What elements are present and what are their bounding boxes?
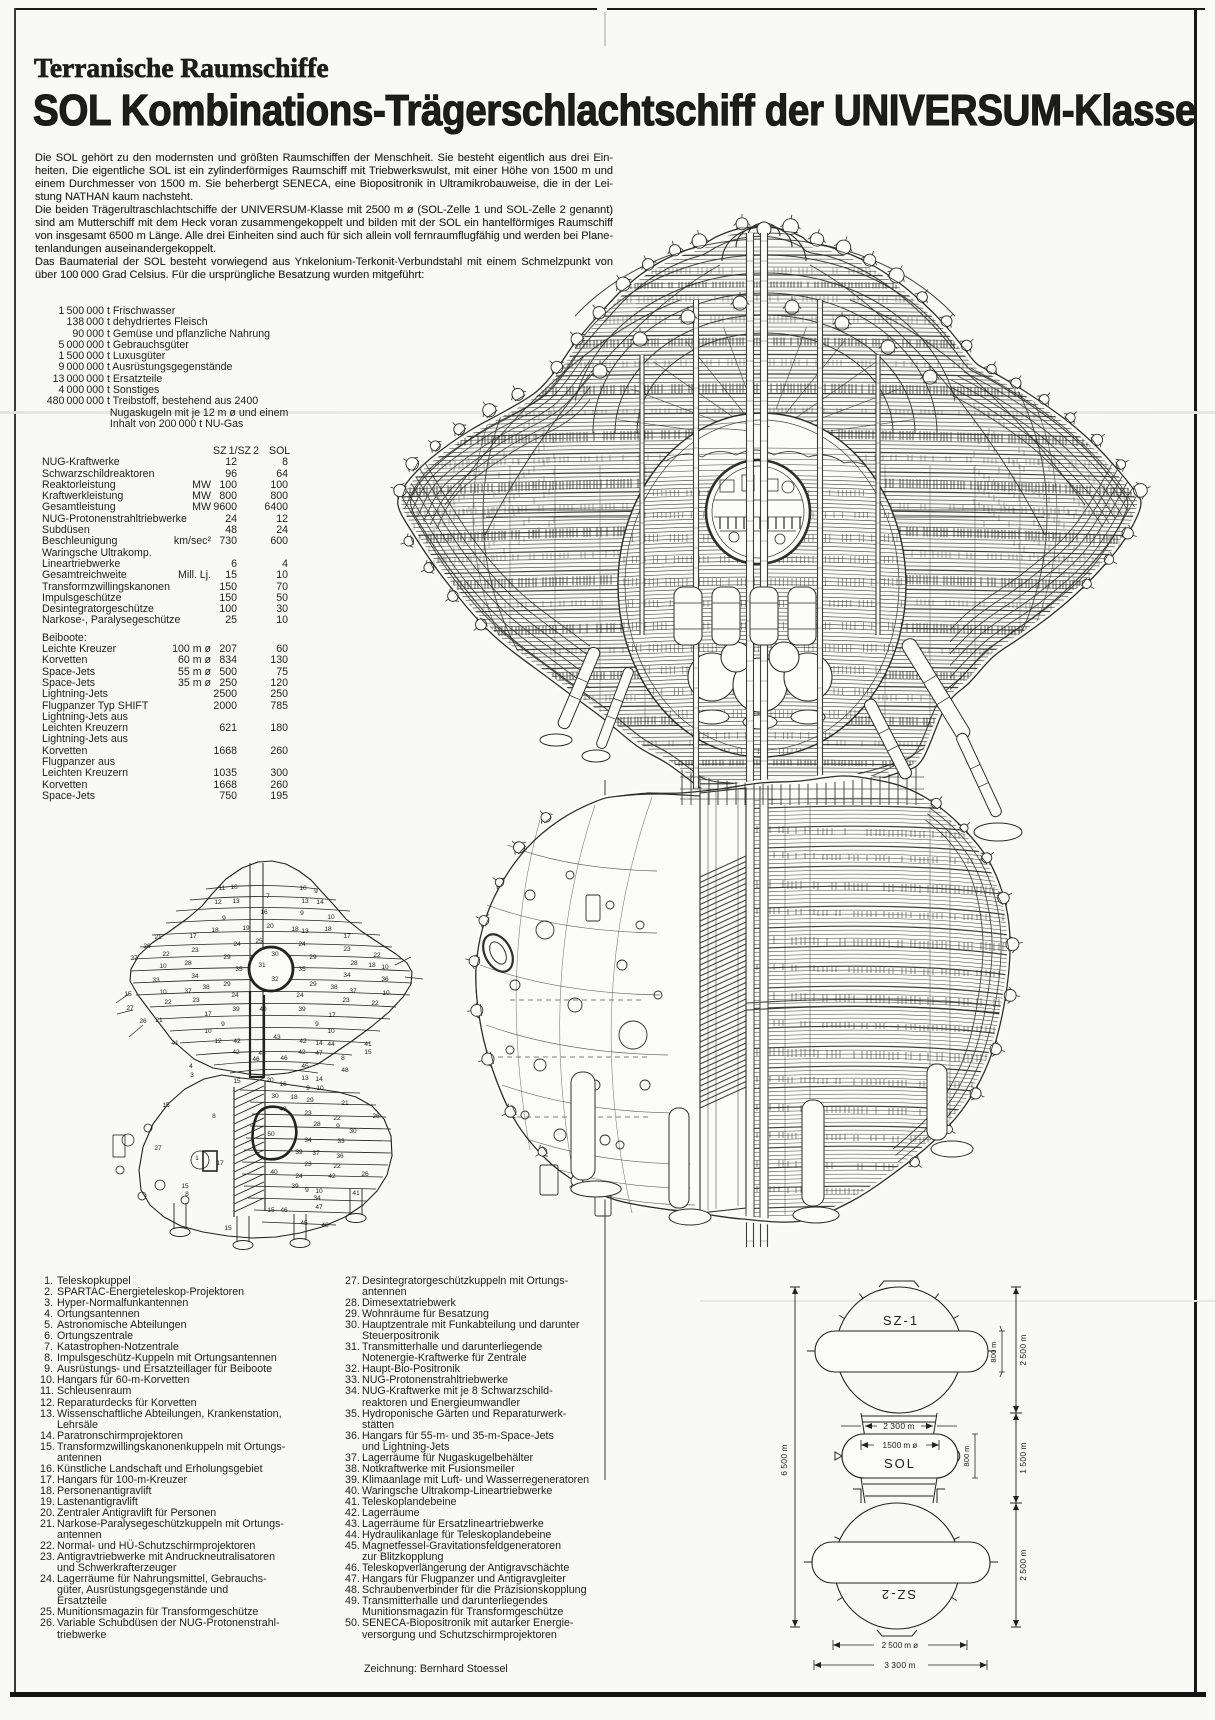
svg-text:45: 45 bbox=[300, 1220, 308, 1227]
svg-text:33: 33 bbox=[152, 977, 160, 984]
svg-text:12: 12 bbox=[214, 899, 222, 906]
svg-text:30: 30 bbox=[271, 1093, 279, 1100]
svg-text:48: 48 bbox=[341, 1067, 349, 1074]
svg-text:SOL: SOL bbox=[884, 1456, 916, 1471]
svg-text:41: 41 bbox=[171, 1040, 179, 1047]
svg-text:SZ-2: SZ-2 bbox=[880, 1587, 916, 1602]
svg-text:10: 10 bbox=[315, 1188, 323, 1195]
svg-text:26: 26 bbox=[372, 1113, 380, 1120]
svg-text:42: 42 bbox=[328, 1173, 336, 1180]
svg-text:10: 10 bbox=[204, 1028, 212, 1035]
svg-text:14: 14 bbox=[315, 1076, 323, 1083]
svg-text:10: 10 bbox=[159, 963, 167, 970]
svg-text:23: 23 bbox=[192, 997, 200, 1004]
svg-text:10: 10 bbox=[382, 990, 390, 997]
svg-text:13: 13 bbox=[301, 928, 309, 935]
svg-text:50: 50 bbox=[267, 1131, 275, 1138]
svg-text:37: 37 bbox=[349, 988, 357, 995]
svg-text:41: 41 bbox=[364, 1041, 372, 1048]
svg-text:10: 10 bbox=[159, 989, 167, 996]
svg-text:21: 21 bbox=[341, 1100, 349, 1107]
svg-text:9: 9 bbox=[315, 1021, 319, 1028]
svg-text:24: 24 bbox=[298, 941, 306, 948]
svg-text:13: 13 bbox=[301, 898, 309, 905]
svg-text:15: 15 bbox=[364, 1049, 372, 1056]
svg-text:10: 10 bbox=[299, 885, 307, 892]
svg-text:34: 34 bbox=[313, 1195, 321, 1202]
svg-text:11: 11 bbox=[219, 885, 226, 892]
svg-text:32: 32 bbox=[271, 976, 279, 983]
svg-text:39: 39 bbox=[291, 1183, 299, 1190]
svg-text:1 500 m: 1 500 m bbox=[1018, 1442, 1028, 1474]
svg-text:45: 45 bbox=[301, 1063, 309, 1070]
svg-text:1: 1 bbox=[195, 1155, 199, 1162]
svg-text:34: 34 bbox=[191, 973, 199, 980]
svg-text:38: 38 bbox=[330, 984, 338, 991]
svg-text:26: 26 bbox=[361, 1171, 369, 1178]
svg-text:9: 9 bbox=[305, 1187, 309, 1194]
svg-text:14: 14 bbox=[315, 1040, 323, 1047]
svg-text:29: 29 bbox=[223, 954, 231, 961]
svg-text:18: 18 bbox=[368, 962, 376, 969]
svg-text:13: 13 bbox=[301, 1075, 309, 1082]
svg-text:29: 29 bbox=[223, 981, 231, 988]
svg-text:9: 9 bbox=[222, 915, 226, 922]
svg-text:15: 15 bbox=[162, 1102, 170, 1109]
svg-text:18: 18 bbox=[324, 926, 332, 933]
svg-text:8: 8 bbox=[212, 1113, 216, 1120]
svg-text:46: 46 bbox=[280, 1207, 288, 1214]
svg-text:20: 20 bbox=[266, 923, 274, 930]
svg-text:29: 29 bbox=[306, 1097, 314, 1104]
svg-text:34: 34 bbox=[304, 1137, 312, 1144]
svg-text:49: 49 bbox=[279, 1106, 287, 1113]
svg-text:12: 12 bbox=[214, 1038, 222, 1045]
svg-text:15: 15 bbox=[181, 1183, 189, 1190]
svg-text:37: 37 bbox=[312, 1150, 320, 1157]
svg-text:42: 42 bbox=[299, 1038, 307, 1045]
svg-text:27: 27 bbox=[130, 955, 138, 962]
svg-text:34: 34 bbox=[343, 972, 351, 979]
svg-text:6 500 m: 6 500 m bbox=[779, 1444, 789, 1476]
svg-text:40: 40 bbox=[259, 1006, 267, 1013]
svg-text:26: 26 bbox=[143, 943, 151, 950]
svg-text:800 m: 800 m bbox=[989, 1341, 998, 1362]
svg-text:41: 41 bbox=[352, 1190, 360, 1197]
svg-text:39: 39 bbox=[298, 1006, 306, 1013]
svg-text:35: 35 bbox=[298, 966, 306, 973]
svg-text:28: 28 bbox=[313, 1121, 321, 1128]
svg-text:2 500 m: 2 500 m bbox=[1018, 1549, 1028, 1581]
svg-text:2 500 m ø: 2 500 m ø bbox=[882, 1641, 919, 1650]
svg-text:22: 22 bbox=[162, 951, 170, 958]
svg-text:21: 21 bbox=[155, 1017, 163, 1024]
svg-text:9: 9 bbox=[314, 888, 318, 895]
svg-text:30: 30 bbox=[271, 951, 279, 958]
svg-text:22: 22 bbox=[333, 1115, 341, 1122]
svg-text:29: 29 bbox=[309, 981, 317, 988]
svg-text:22: 22 bbox=[373, 952, 381, 959]
svg-text:15: 15 bbox=[233, 1078, 241, 1085]
svg-text:40: 40 bbox=[270, 1169, 278, 1176]
svg-text:39: 39 bbox=[295, 1149, 303, 1156]
svg-text:14: 14 bbox=[316, 899, 324, 906]
svg-text:9: 9 bbox=[336, 1123, 340, 1130]
svg-text:3: 3 bbox=[190, 1072, 194, 1079]
svg-text:36: 36 bbox=[381, 976, 389, 983]
svg-text:10: 10 bbox=[381, 964, 389, 971]
svg-text:35: 35 bbox=[235, 966, 243, 973]
svg-text:17: 17 bbox=[328, 1012, 336, 1019]
svg-text:47: 47 bbox=[315, 1050, 323, 1057]
svg-text:33: 33 bbox=[337, 1138, 345, 1145]
svg-text:42: 42 bbox=[233, 1038, 241, 1045]
svg-text:46: 46 bbox=[280, 1055, 288, 1062]
svg-text:SZ-1: SZ-1 bbox=[883, 1313, 919, 1328]
svg-text:20: 20 bbox=[266, 1077, 274, 1084]
svg-text:8: 8 bbox=[341, 1055, 345, 1062]
svg-text:38: 38 bbox=[202, 984, 210, 991]
svg-text:18: 18 bbox=[291, 926, 299, 933]
svg-text:39: 39 bbox=[232, 1006, 240, 1013]
svg-text:15: 15 bbox=[224, 1225, 232, 1232]
svg-text:29: 29 bbox=[309, 954, 317, 961]
svg-text:9: 9 bbox=[306, 1085, 310, 1092]
svg-text:42: 42 bbox=[298, 1049, 306, 1056]
svg-text:3 300 m: 3 300 m bbox=[884, 1660, 916, 1670]
svg-text:7: 7 bbox=[266, 893, 270, 900]
svg-text:8: 8 bbox=[185, 1191, 189, 1198]
svg-text:24: 24 bbox=[295, 1173, 303, 1180]
svg-text:24: 24 bbox=[296, 992, 304, 999]
svg-text:22: 22 bbox=[164, 999, 172, 1006]
svg-text:28: 28 bbox=[350, 960, 358, 967]
svg-text:28: 28 bbox=[184, 960, 192, 967]
svg-text:48: 48 bbox=[321, 1222, 329, 1229]
svg-text:42: 42 bbox=[232, 1049, 240, 1056]
svg-text:22: 22 bbox=[371, 1000, 379, 1007]
svg-text:31: 31 bbox=[258, 962, 266, 969]
svg-text:27: 27 bbox=[154, 1145, 162, 1152]
svg-text:4: 4 bbox=[189, 1063, 193, 1070]
svg-text:10: 10 bbox=[230, 884, 238, 891]
svg-text:13: 13 bbox=[232, 898, 240, 905]
svg-text:44: 44 bbox=[327, 1041, 335, 1048]
svg-text:19: 19 bbox=[242, 925, 250, 932]
svg-text:15: 15 bbox=[124, 991, 132, 998]
svg-text:17: 17 bbox=[204, 1011, 212, 1018]
svg-text:22: 22 bbox=[333, 1163, 341, 1170]
svg-text:10: 10 bbox=[316, 1085, 324, 1092]
svg-text:24: 24 bbox=[233, 941, 241, 948]
svg-text:18: 18 bbox=[211, 927, 219, 934]
svg-text:17: 17 bbox=[216, 1160, 224, 1167]
svg-text:23: 23 bbox=[343, 946, 351, 953]
svg-text:21: 21 bbox=[154, 934, 162, 941]
svg-text:18: 18 bbox=[290, 1094, 298, 1101]
svg-text:47: 47 bbox=[315, 1204, 323, 1211]
svg-text:2 500 m: 2 500 m bbox=[1018, 1334, 1028, 1366]
svg-text:37: 37 bbox=[184, 988, 192, 995]
svg-text:15: 15 bbox=[267, 1207, 275, 1214]
svg-text:10: 10 bbox=[327, 914, 335, 921]
svg-text:30: 30 bbox=[349, 1128, 357, 1135]
svg-text:23: 23 bbox=[304, 1161, 312, 1168]
svg-text:16: 16 bbox=[260, 909, 268, 916]
svg-text:43: 43 bbox=[273, 1034, 281, 1041]
svg-text:24: 24 bbox=[231, 992, 239, 999]
svg-text:800 m: 800 m bbox=[962, 1445, 971, 1466]
svg-text:2 300 m: 2 300 m bbox=[883, 1421, 915, 1431]
svg-text:10: 10 bbox=[327, 1028, 335, 1035]
svg-text:27: 27 bbox=[126, 1005, 134, 1012]
svg-text:23: 23 bbox=[342, 997, 350, 1004]
svg-text:17: 17 bbox=[189, 933, 197, 940]
svg-text:25: 25 bbox=[255, 938, 263, 945]
svg-text:17: 17 bbox=[343, 933, 351, 940]
svg-text:16: 16 bbox=[279, 1081, 287, 1088]
svg-text:26: 26 bbox=[139, 1018, 147, 1025]
svg-text:36: 36 bbox=[336, 1153, 344, 1160]
svg-text:23: 23 bbox=[304, 1110, 312, 1117]
svg-text:9: 9 bbox=[221, 1021, 225, 1028]
svg-text:23: 23 bbox=[191, 947, 199, 954]
svg-text:46: 46 bbox=[252, 1056, 260, 1063]
svg-text:1500 m ø: 1500 m ø bbox=[883, 1441, 918, 1450]
svg-text:9: 9 bbox=[300, 910, 304, 917]
